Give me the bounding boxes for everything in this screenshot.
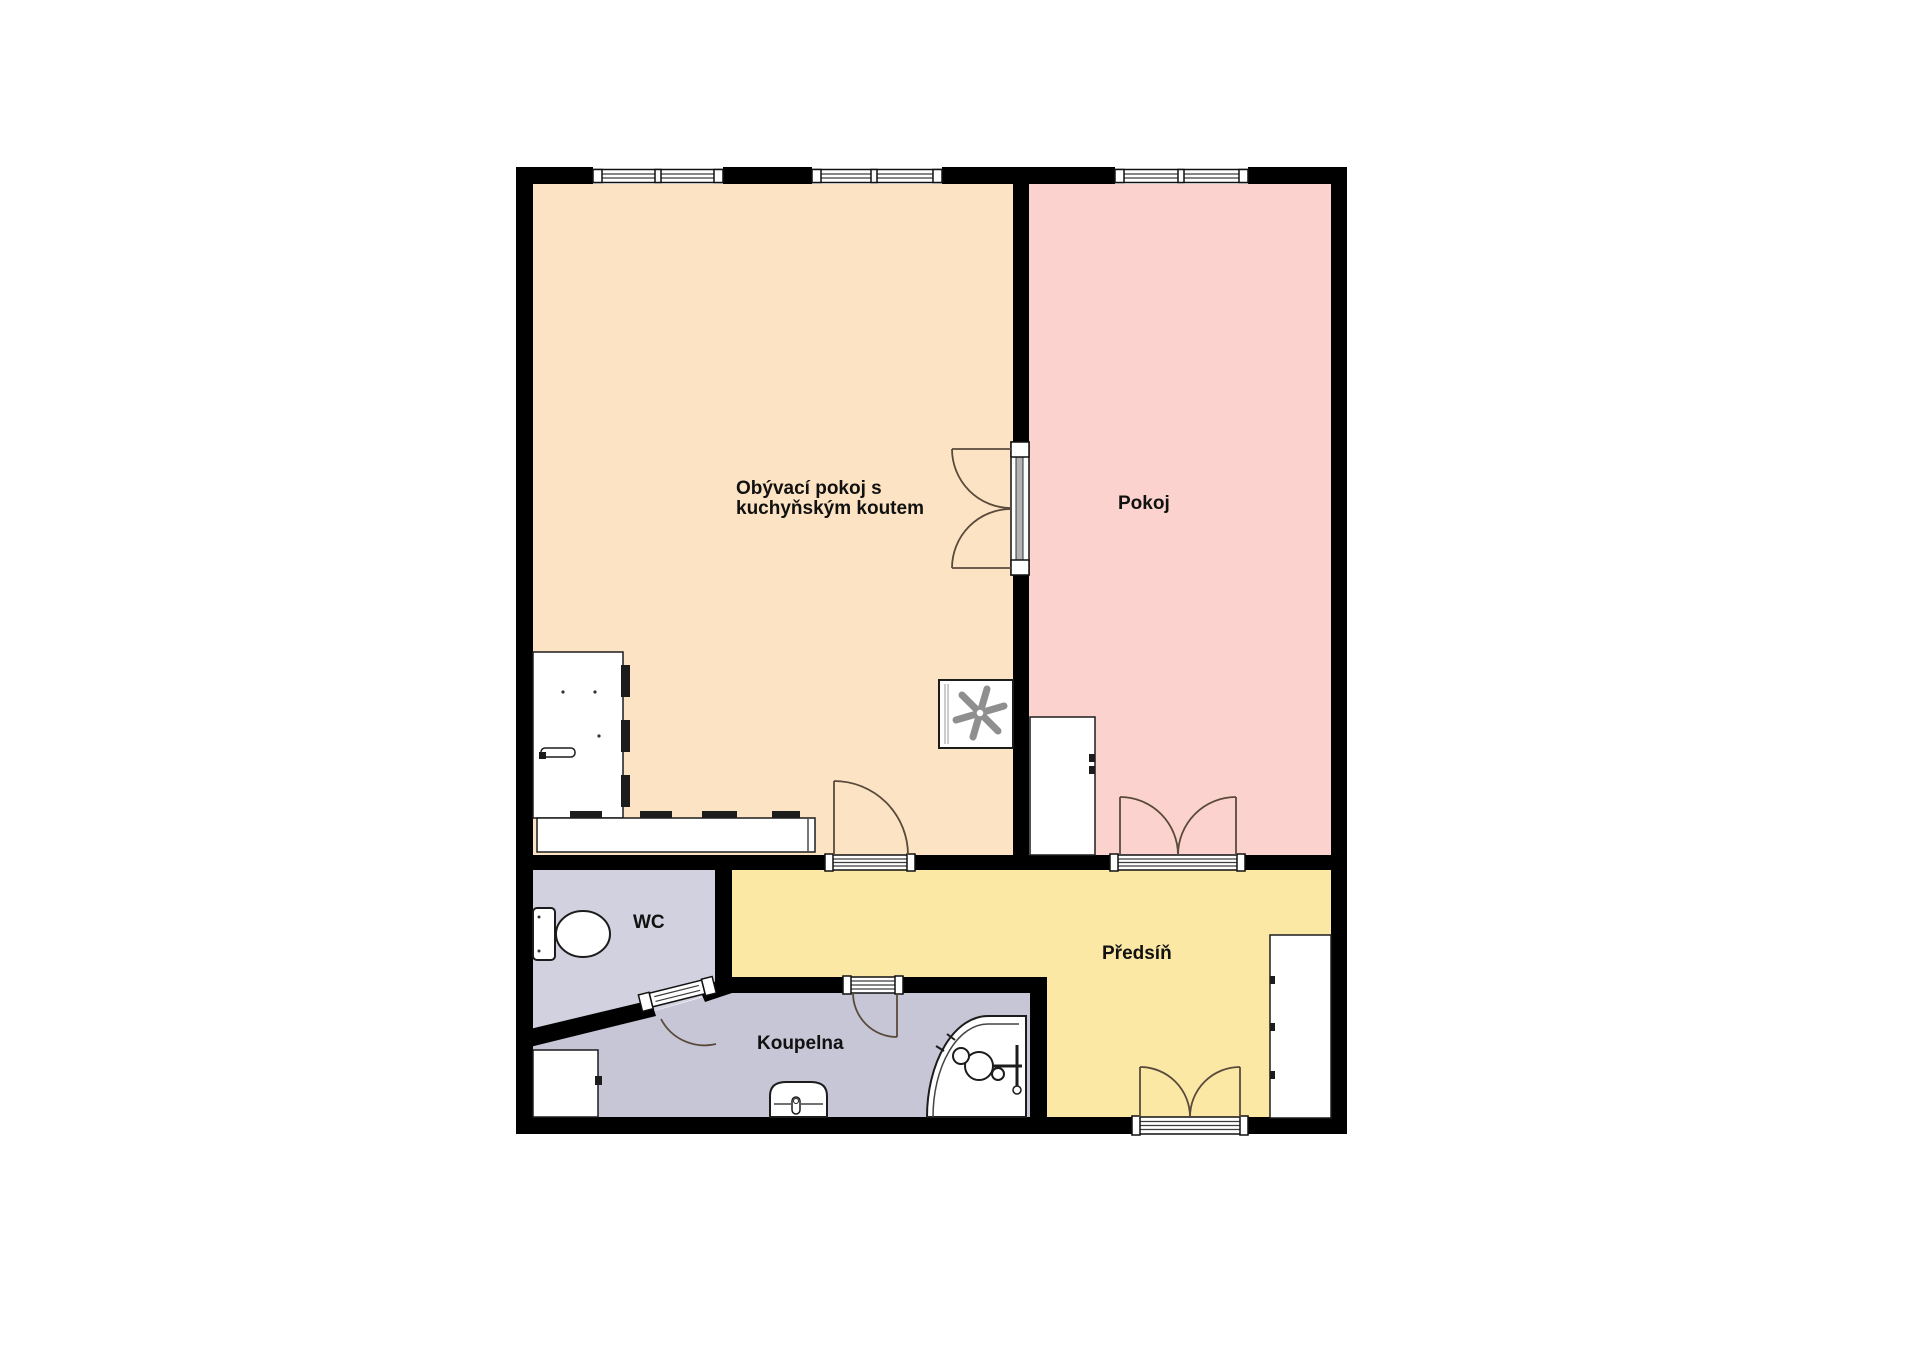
sink-icon: [770, 1082, 827, 1117]
wall-bottom-right: [1248, 1117, 1347, 1134]
wall-living-bottom-left: [533, 855, 825, 870]
window-1-icon: [593, 170, 723, 183]
wall-koupelna-top-left: [715, 977, 843, 993]
predsin-label: Předsíň: [1102, 943, 1172, 964]
wall-partition-lower: [1013, 575, 1029, 870]
wall-top-mid-pillar: [723, 167, 812, 184]
cabinet-handle-icon: [541, 748, 575, 757]
wall-left-outer: [516, 167, 533, 1134]
floor-plan-page: Obývací pokoj s kuchyňským koutem Pokoj …: [0, 0, 1920, 1358]
wall-living-bottom-right: [915, 855, 1013, 870]
wall-top-center: [942, 167, 1115, 184]
wardrobe-predsin: [1270, 935, 1331, 1118]
wall-right-outer: [1331, 167, 1347, 1134]
window-3-icon: [1115, 170, 1248, 183]
windows: [593, 170, 1248, 183]
wall-pokoj-bottom-left: [1029, 855, 1110, 870]
wall-wc-right: [715, 870, 732, 993]
toilet-icon: [533, 908, 610, 960]
wall-koupelna-top-right: [903, 977, 1047, 993]
pokoj-label: Pokoj: [1118, 493, 1170, 514]
living-room-label-line1: Obývací pokoj s: [736, 478, 882, 499]
wall-pokoj-bottom-right: [1245, 855, 1331, 870]
wc-label: WC: [633, 912, 665, 933]
window-2-icon: [812, 170, 942, 183]
wall-partition-upper: [1013, 184, 1029, 442]
floor-plan: Obývací pokoj s kuchyňským koutem Pokoj …: [0, 0, 1920, 1358]
washing-machine: [533, 1050, 602, 1117]
kitchen-cabinet: [533, 652, 630, 818]
stove-icon: [939, 680, 1013, 748]
koupelna-label: Koupelna: [757, 1033, 844, 1054]
wall-koupelna-right: [1030, 977, 1047, 1134]
wardrobe-pokoj: [1030, 717, 1095, 855]
living-room-label-line2: kuchyňským koutem: [736, 498, 924, 519]
